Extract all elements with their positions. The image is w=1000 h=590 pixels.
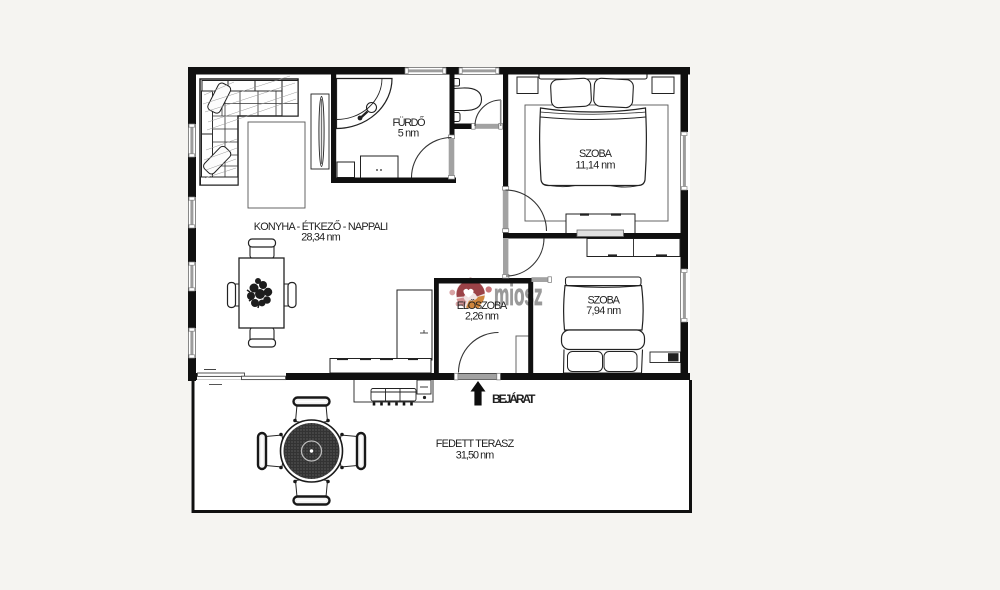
svg-text:11,14 nm: 11,14 nm bbox=[576, 159, 616, 171]
svg-text:2,26 nm: 2,26 nm bbox=[465, 311, 499, 323]
svg-text:7,94 nm: 7,94 nm bbox=[586, 305, 621, 317]
svg-text:FEDETT TERASZ: FEDETT TERASZ bbox=[436, 438, 515, 450]
svg-text:28,34 nm: 28,34 nm bbox=[301, 231, 341, 243]
svg-text:31,50 nm: 31,50 nm bbox=[456, 450, 495, 462]
svg-text:BEJÁRAT: BEJÁRAT bbox=[492, 391, 536, 406]
svg-text:SZOBA: SZOBA bbox=[579, 148, 613, 160]
svg-text:5 nm: 5 nm bbox=[398, 128, 420, 140]
